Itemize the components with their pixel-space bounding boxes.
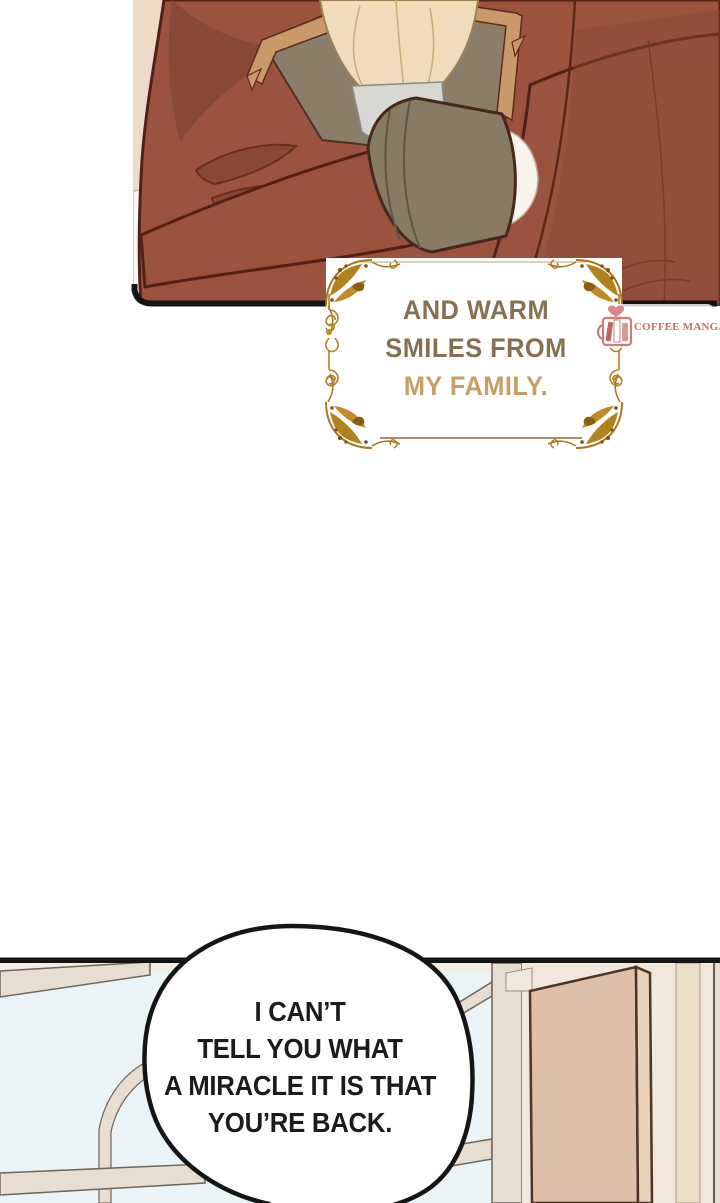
caption-line-emphasis: MY FAMILY.	[339, 367, 613, 405]
door-side-edge	[636, 967, 652, 1203]
window-side-frame	[492, 963, 522, 1203]
bubble-line: I CAN’T	[145, 993, 454, 1030]
wall-stripe	[676, 963, 700, 1203]
bubble-line: TELL YOU WHAT	[145, 1030, 454, 1067]
bubble-line: A MIRACLE IT IS THAT	[145, 1067, 454, 1104]
caption-line: SMILES FROM	[339, 329, 613, 367]
webtoon-page: AND WARM SMILES FROM MY FAMILY. COFFEE M…	[0, 0, 720, 1203]
watermark-label: COFFEE MANGA	[634, 321, 720, 334]
caption-text: AND WARM SMILES FROM MY FAMILY.	[339, 291, 613, 405]
door	[530, 967, 638, 1203]
caption-line: AND WARM	[339, 291, 613, 329]
bubble-line: YOU’RE BACK.	[145, 1104, 454, 1141]
speech-bubble-text: I CAN’T TELL YOU WHAT A MIRACLE IT IS TH…	[145, 993, 454, 1141]
